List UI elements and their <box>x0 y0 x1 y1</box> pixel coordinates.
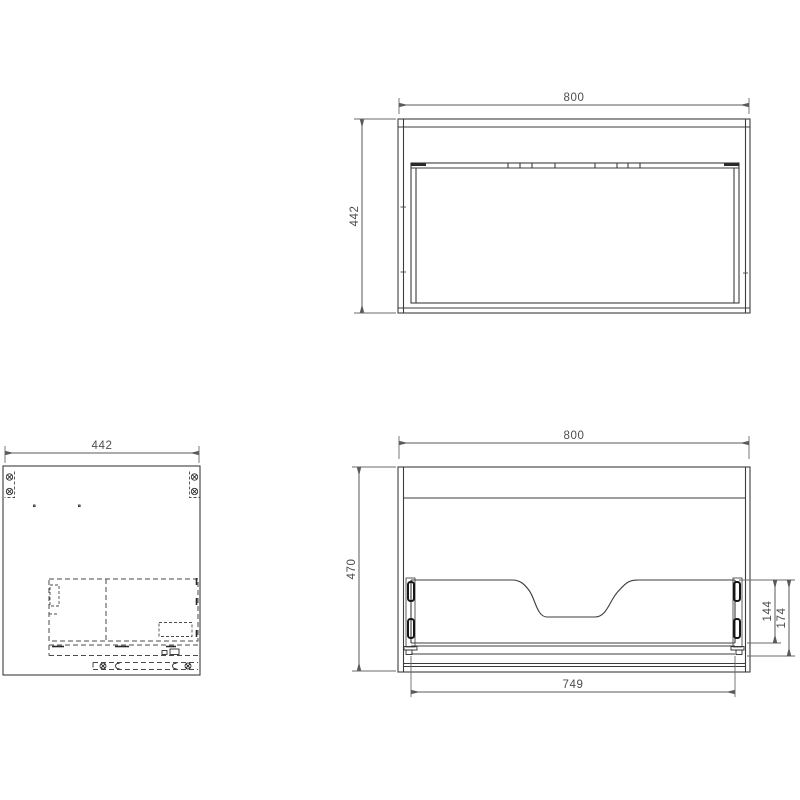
cad-drawing-page: 800 442 <box>0 0 800 800</box>
front-view: 800 470 749 144 174 <box>346 430 795 697</box>
top-view: 800 442 <box>349 92 750 313</box>
dim-top-width: 800 <box>399 92 749 114</box>
dim-label-front-inner-b: 174 <box>776 608 788 629</box>
dim-label-top-width: 800 <box>564 92 585 104</box>
dim-label-top-depth: 442 <box>349 206 361 227</box>
dim-top-depth: 442 <box>349 119 396 313</box>
cad-drawing: 800 442 <box>0 0 800 800</box>
dim-label-front-height: 470 <box>346 559 358 580</box>
drawer-back-panel <box>411 580 735 643</box>
top-view-opening <box>411 163 739 303</box>
side-view-hidden-bottom-rail <box>93 663 198 670</box>
dim-label-front-drawer-width: 749 <box>563 679 584 691</box>
drawer-slide-right <box>731 578 744 655</box>
side-view-cam-locks <box>5 472 200 498</box>
side-view-hidden-rail <box>49 645 198 656</box>
top-view-outline <box>398 119 750 313</box>
dim-front-inner-heights: 144 174 <box>739 580 795 656</box>
dim-label-front-inner-a: 144 <box>762 601 774 622</box>
side-view: 442 <box>3 440 200 675</box>
dim-front-height: 470 <box>346 467 396 671</box>
top-view-rail-joint-ticks <box>508 163 640 168</box>
dim-front-width: 800 <box>399 430 749 459</box>
dim-label-front-width: 800 <box>564 430 585 442</box>
front-view-carcass <box>398 467 750 672</box>
drawer-rails <box>411 643 735 654</box>
side-view-panel <box>3 466 200 675</box>
side-view-hidden-drawer <box>49 578 198 641</box>
dim-front-drawer-width: 749 <box>411 656 735 697</box>
dim-side-depth: 442 <box>5 440 199 463</box>
dim-label-side-depth: 442 <box>92 440 113 452</box>
